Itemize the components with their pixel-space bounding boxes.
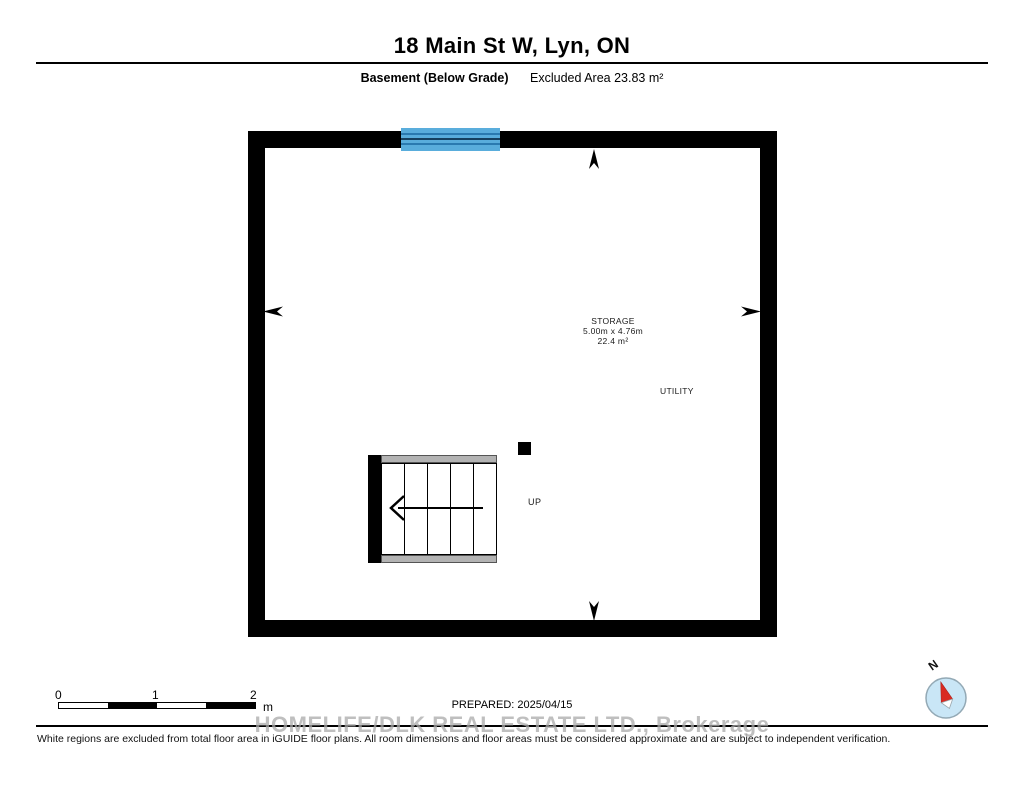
support-column bbox=[518, 442, 531, 455]
east-wall-arrow-icon bbox=[741, 305, 761, 318]
header-divider bbox=[36, 62, 988, 64]
north-wall-arrow-icon bbox=[588, 149, 600, 169]
plan-subtitle: Basement (Below Grade) Excluded Area 23.… bbox=[0, 71, 1024, 85]
south-wall-arrow-icon bbox=[588, 601, 600, 621]
stair-direction-arrow-icon bbox=[368, 455, 497, 563]
window-pane-line bbox=[401, 143, 500, 145]
floorplan-page: 18 Main St W, Lyn, ON Basement (Below Gr… bbox=[0, 0, 1024, 791]
page-title: 18 Main St W, Lyn, ON bbox=[0, 33, 1024, 59]
excluded-area-label: Excluded Area 23.83 m² bbox=[530, 71, 663, 85]
window-icon bbox=[401, 128, 500, 151]
prepared-date-label: PREPARED: 2025/04/15 bbox=[0, 699, 1024, 711]
brokerage-watermark: HOMELIFE/DLK REAL ESTATE LTD., Brokerage bbox=[0, 712, 1024, 738]
room-area: 22.4 m² bbox=[537, 336, 689, 346]
window-pane-line bbox=[401, 138, 500, 140]
room-name: STORAGE bbox=[537, 316, 689, 326]
floor-plan: STORAGE 5.00m x 4.76m 22.4 m² UTILITY UP bbox=[248, 131, 777, 637]
west-wall-arrow-icon bbox=[263, 305, 283, 318]
staircase bbox=[368, 455, 497, 563]
room-dimensions: 5.00m x 4.76m bbox=[537, 326, 689, 336]
window-pane-line bbox=[401, 133, 500, 135]
room-label-storage: STORAGE 5.00m x 4.76m 22.4 m² bbox=[537, 316, 689, 346]
compass-north-label: N bbox=[926, 658, 941, 673]
floor-label: Basement (Below Grade) bbox=[361, 71, 509, 85]
room-label-utility: UTILITY bbox=[660, 386, 720, 396]
stair-up-label: UP bbox=[528, 497, 542, 507]
